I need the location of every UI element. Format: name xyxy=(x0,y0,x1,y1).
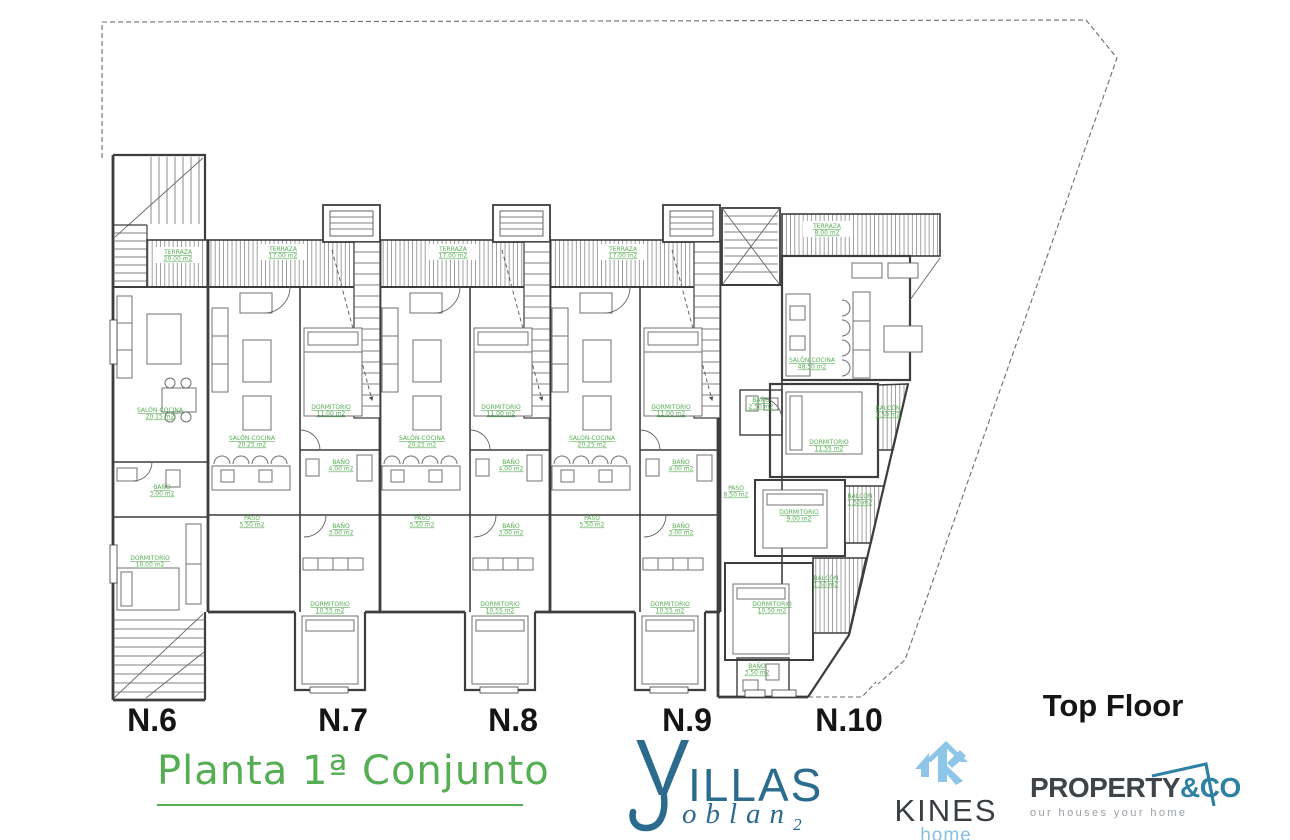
room-label: BALCÓN1.50 m2 xyxy=(848,493,873,507)
room-label: TERRAZA8.00 m2 xyxy=(812,223,842,237)
villas-joblan-logo: V ILLAS oblan2 xyxy=(612,738,827,838)
room-label: DORMITORIO10.50 m2 xyxy=(752,601,792,615)
property-co-logo: PROPERTY&CO our houses your home xyxy=(1030,758,1230,819)
kines-house-icon xyxy=(914,738,978,788)
villas-v-letter: V xyxy=(636,728,689,808)
room-label: SALÓN-COCINA20.15 m2 xyxy=(137,407,184,421)
room-label: BAÑO3.00 m2 xyxy=(329,523,354,537)
unit-label-n7: N.7 xyxy=(318,702,368,739)
room-label: DORMITORIO10.55 m2 xyxy=(480,601,520,615)
room-label: BALCÓN1.50 m2 xyxy=(814,575,839,589)
room-label: BAÑO4.00 m2 xyxy=(499,459,524,473)
kines-name: KINES xyxy=(876,793,1016,829)
unit-n6 xyxy=(110,155,208,700)
room-label: BALCÓN1.50 m2 xyxy=(876,405,901,419)
room-label: PASO8.50 m2 xyxy=(724,485,749,499)
floor-plan-page: TERRAZA20.00 m2TERRAZA17.00 m2TERRAZA17.… xyxy=(0,0,1290,840)
property-tagline: our houses your home xyxy=(1030,807,1230,819)
room-label: TERRAZA17.00 m2 xyxy=(608,246,638,260)
room-label: BAÑO3.00 m2 xyxy=(669,523,694,537)
unit-n10 xyxy=(718,208,940,697)
room-label: SALÓN-COCINA20.25 m2 xyxy=(229,435,276,449)
room-label: DORMITORIO11.00 m2 xyxy=(481,404,521,418)
unit-label-n6: N.6 xyxy=(127,702,177,739)
room-label: BAÑO4.00 m2 xyxy=(669,459,694,473)
floor-name: Top Floor xyxy=(1043,688,1184,724)
room-label: TERRAZA17.00 m2 xyxy=(438,246,468,260)
unit-label-n10: N.10 xyxy=(815,702,883,739)
room-label: SALÓN-COCINA20.25 m2 xyxy=(399,435,446,449)
property-name: PROPERTY&CO xyxy=(1030,772,1230,804)
room-label: TERRAZA20.00 m2 xyxy=(163,249,193,263)
room-label: BAÑO4.00 m2 xyxy=(329,459,354,473)
room-label: DORMITORIO11.55 m2 xyxy=(809,439,849,453)
room-label: SALÓN-COCINA20.25 m2 xyxy=(569,435,616,449)
room-label: BAÑO3.00 m2 xyxy=(499,523,524,537)
room-label: TERRAZA17.00 m2 xyxy=(268,246,298,260)
room-label: DORMITORIO11.00 m2 xyxy=(651,404,691,418)
room-label: PASO5.50 m2 xyxy=(410,515,435,529)
room-label: PASO5.50 m2 xyxy=(240,515,265,529)
room-label: PASO5.50 m2 xyxy=(580,515,605,529)
unit-label-n8: N.8 xyxy=(488,702,538,739)
room-label: DORMITORIO10.55 m2 xyxy=(310,601,350,615)
kines-home-logo: KINES home xyxy=(876,738,1016,840)
room-label: DORMITORIO11.00 m2 xyxy=(311,404,351,418)
page-title: Planta 1ª Conjunto xyxy=(157,748,523,806)
room-label: DORMITORIO10.55 m2 xyxy=(650,601,690,615)
room-label: DORMITORIO10.00 m2 xyxy=(130,555,170,569)
villas-oblan-text: oblan2 xyxy=(682,798,802,835)
